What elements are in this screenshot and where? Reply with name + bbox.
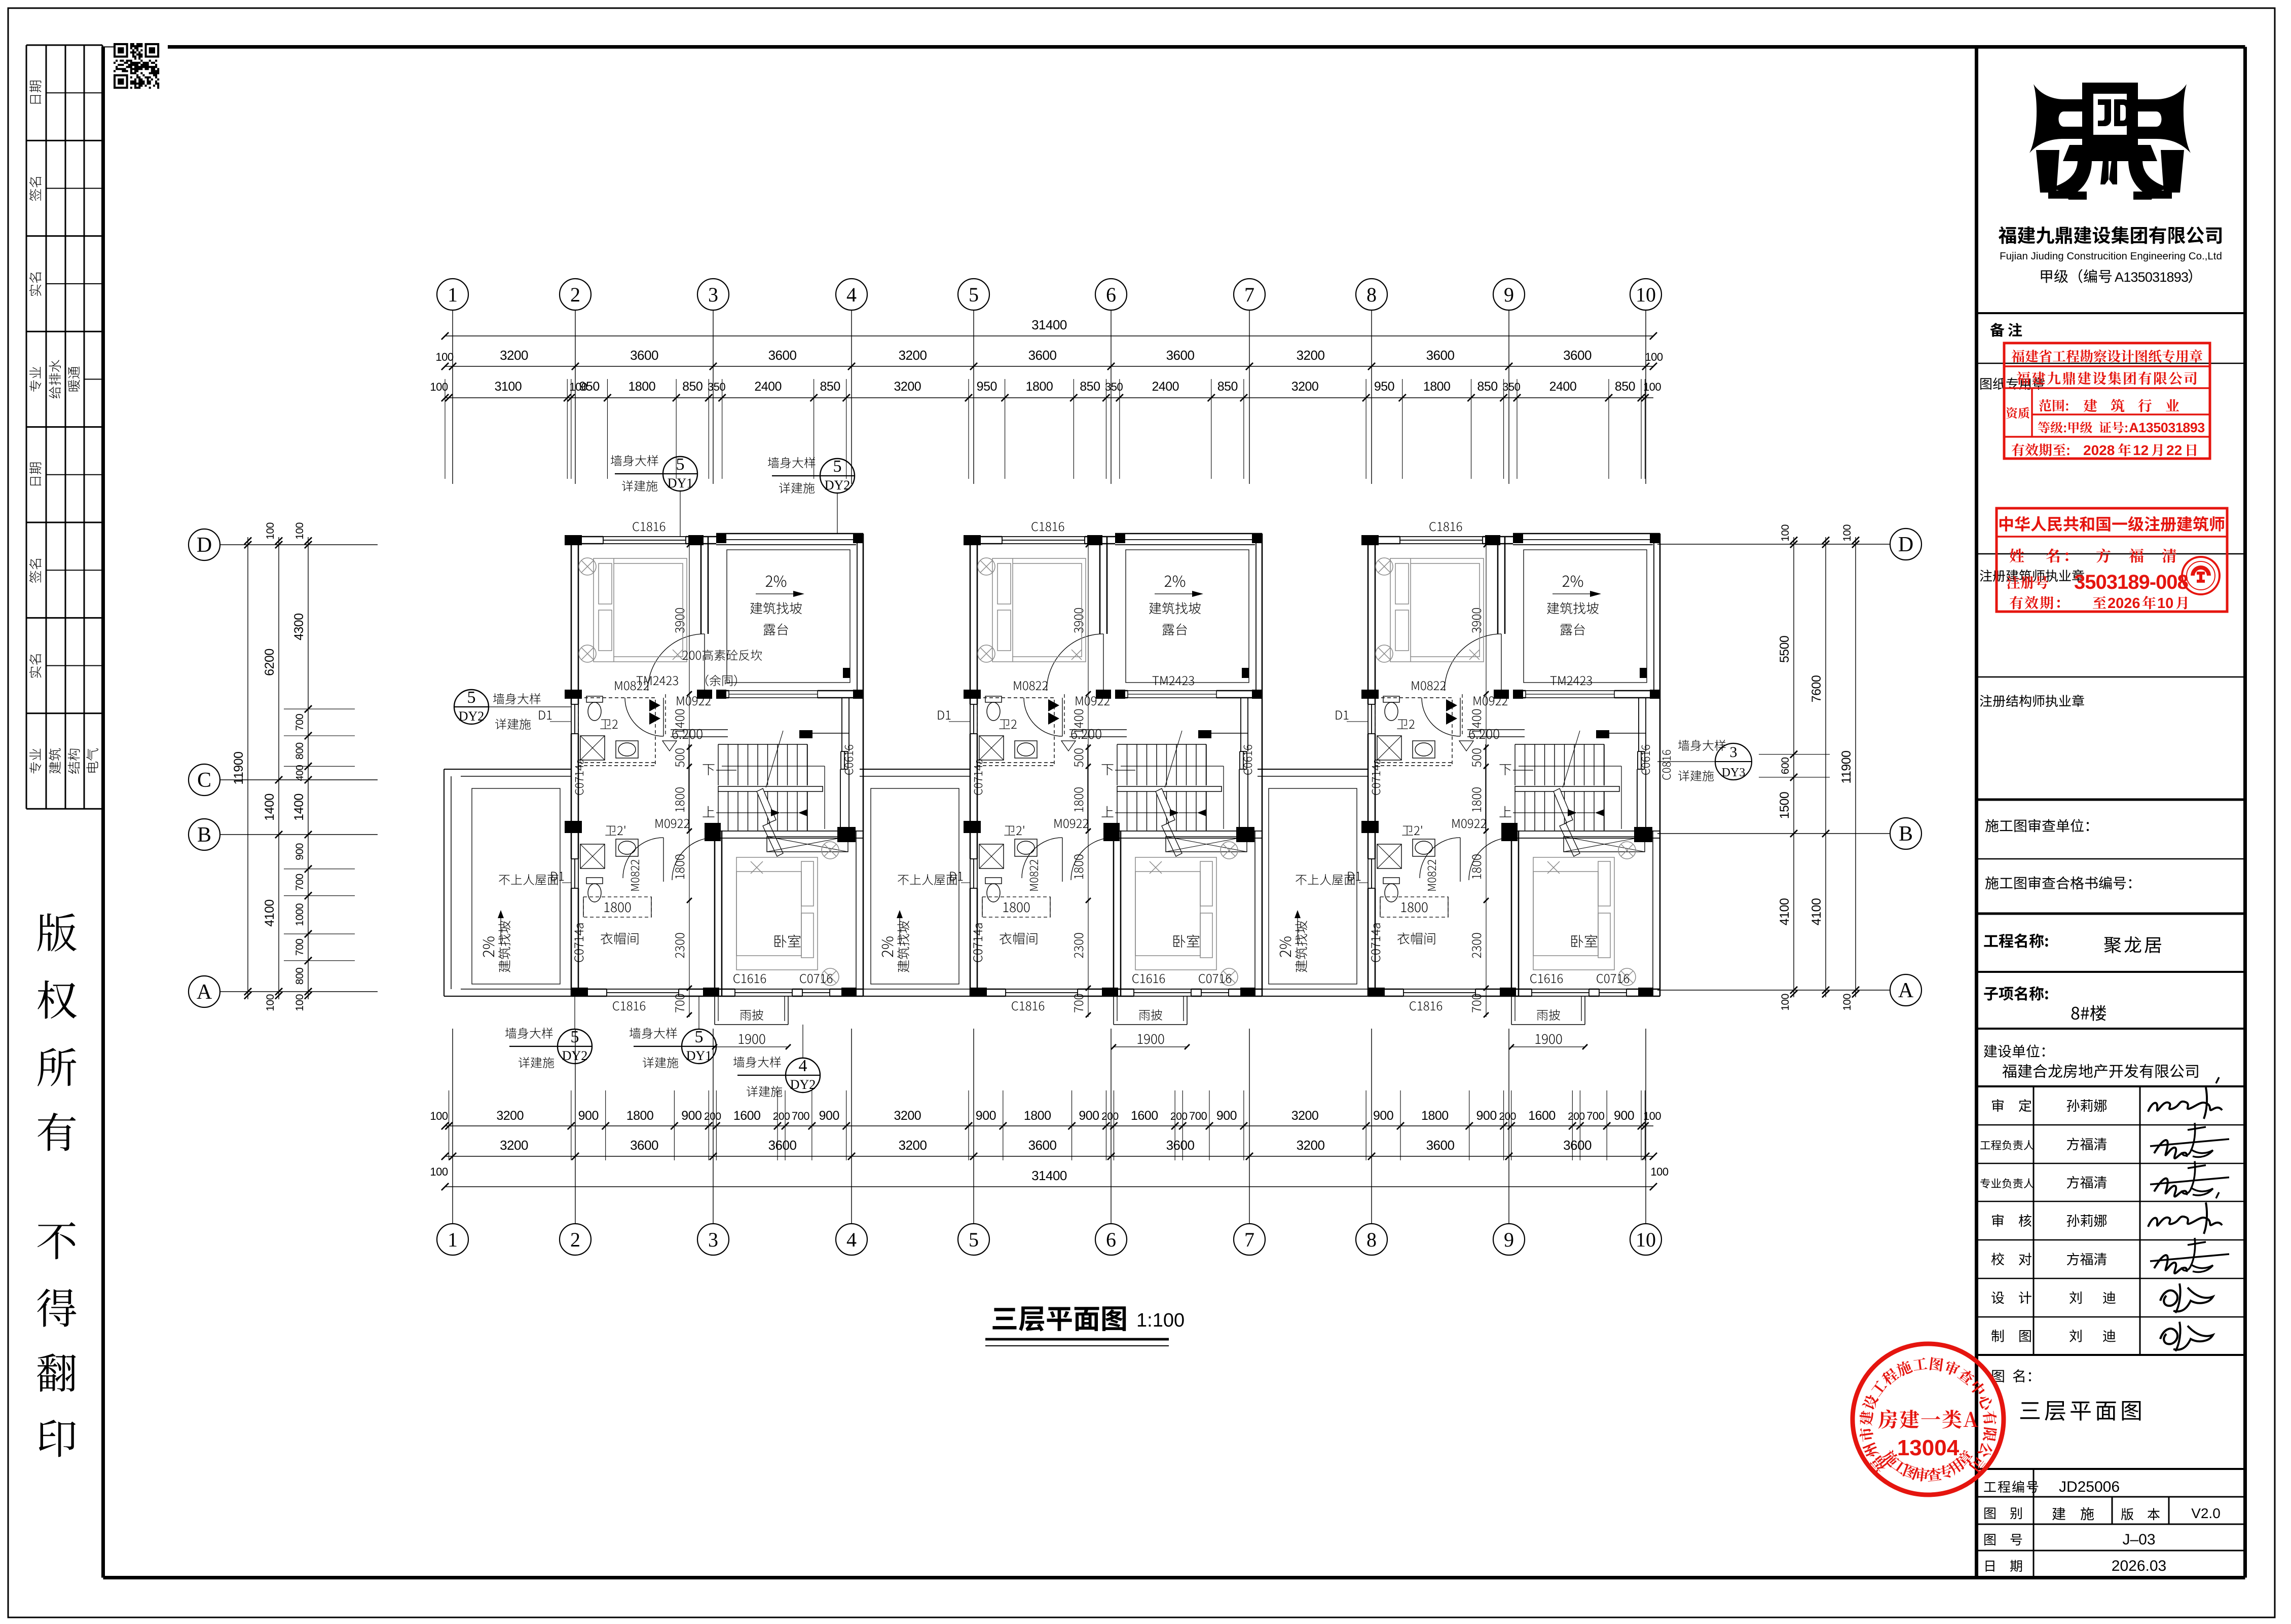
- svg-text:900: 900: [819, 1109, 839, 1123]
- svg-text:600: 600: [1780, 758, 1791, 775]
- svg-text:3600: 3600: [1563, 1138, 1592, 1153]
- svg-text:850: 850: [1615, 380, 1635, 394]
- svg-text:950: 950: [977, 380, 997, 394]
- svg-text:1400: 1400: [292, 794, 306, 821]
- svg-text:8: 8: [1366, 1228, 1377, 1251]
- svg-text:100: 100: [1780, 524, 1791, 542]
- svg-text:DY1: DY1: [686, 1048, 712, 1063]
- svg-text:100: 100: [265, 994, 276, 1011]
- svg-text:700: 700: [792, 1110, 809, 1122]
- svg-text:1800: 1800: [626, 1109, 654, 1123]
- svg-text:1800: 1800: [1026, 380, 1053, 394]
- svg-text:5: 5: [676, 455, 685, 474]
- svg-text:100: 100: [1841, 524, 1853, 542]
- svg-text:400: 400: [294, 765, 306, 781]
- svg-text:100: 100: [1780, 994, 1791, 1011]
- svg-text:950: 950: [579, 380, 600, 394]
- svg-text:DY2: DY2: [459, 709, 485, 724]
- svg-text:900: 900: [1373, 1109, 1393, 1123]
- svg-text:2026: 2026: [2108, 595, 2140, 612]
- svg-text:13004: 13004: [1897, 1436, 1960, 1460]
- svg-text:5500: 5500: [1778, 636, 1792, 663]
- svg-text:1: 1: [448, 1228, 458, 1251]
- svg-text:850: 850: [820, 380, 840, 394]
- svg-text:JD25006: JD25006: [2059, 1479, 2120, 1495]
- svg-text:200: 200: [1568, 1111, 1585, 1122]
- svg-text:1800: 1800: [1423, 380, 1451, 394]
- svg-text:10: 10: [1636, 283, 1656, 306]
- svg-text:200: 200: [1170, 1111, 1188, 1122]
- svg-text:100: 100: [430, 1110, 448, 1122]
- svg-text:350: 350: [1105, 381, 1123, 393]
- svg-text:6200: 6200: [263, 649, 277, 676]
- svg-text:4300: 4300: [292, 613, 306, 640]
- svg-text:100: 100: [1841, 994, 1853, 1011]
- svg-text:1500: 1500: [1778, 792, 1792, 819]
- svg-text:2: 2: [570, 1228, 580, 1251]
- svg-text:A135031893: A135031893: [2129, 420, 2205, 435]
- svg-text:700: 700: [1586, 1110, 1604, 1122]
- svg-text:950: 950: [1374, 380, 1394, 394]
- svg-text:2400: 2400: [754, 380, 782, 394]
- svg-text:3600: 3600: [1426, 348, 1455, 363]
- svg-text:5: 5: [969, 1228, 979, 1251]
- svg-text:3600: 3600: [768, 348, 797, 363]
- svg-text:3200: 3200: [1297, 1138, 1325, 1153]
- svg-text:A: A: [1898, 979, 1914, 1002]
- svg-text:3: 3: [708, 1228, 718, 1251]
- svg-text:100: 100: [435, 351, 453, 363]
- svg-text:A135031893: A135031893: [2115, 270, 2188, 285]
- svg-text:5: 5: [467, 688, 476, 707]
- svg-text:4: 4: [846, 283, 857, 306]
- svg-text:7600: 7600: [1809, 675, 1824, 703]
- svg-text:1600: 1600: [1528, 1109, 1556, 1123]
- svg-text:3600: 3600: [630, 348, 658, 363]
- svg-text:5: 5: [833, 457, 842, 476]
- svg-text:D: D: [1898, 533, 1913, 556]
- svg-text:10: 10: [1636, 1228, 1656, 1251]
- svg-text:3200: 3200: [1297, 348, 1325, 363]
- svg-text:22: 22: [2166, 442, 2182, 458]
- svg-text:3503189-008: 3503189-008: [2074, 571, 2189, 593]
- svg-text:C: C: [197, 769, 211, 792]
- svg-text:900: 900: [976, 1109, 996, 1123]
- svg-text:3600: 3600: [1563, 348, 1592, 363]
- svg-text:900: 900: [1216, 1109, 1237, 1123]
- svg-text:11900: 11900: [232, 751, 246, 784]
- svg-text:3200: 3200: [500, 1138, 528, 1153]
- svg-text:100: 100: [1650, 1165, 1668, 1178]
- svg-text:3600: 3600: [1166, 1138, 1195, 1153]
- svg-text:3600: 3600: [630, 1138, 658, 1153]
- svg-text:6: 6: [1106, 283, 1116, 306]
- svg-text:3200: 3200: [894, 1109, 921, 1123]
- svg-text:2026.03: 2026.03: [2112, 1558, 2166, 1574]
- svg-text:100: 100: [1643, 381, 1661, 393]
- svg-text:2400: 2400: [1152, 380, 1179, 394]
- svg-text:1800: 1800: [1421, 1109, 1449, 1123]
- svg-text:B: B: [197, 823, 211, 847]
- svg-text:5: 5: [695, 1028, 704, 1046]
- svg-text:8: 8: [1366, 283, 1377, 306]
- svg-text:A: A: [197, 980, 212, 1004]
- svg-text:350: 350: [708, 381, 725, 393]
- svg-text:7: 7: [1244, 283, 1254, 306]
- svg-text:DY3: DY3: [1722, 766, 1746, 779]
- svg-text:3200: 3200: [500, 348, 528, 363]
- svg-text:3600: 3600: [768, 1138, 797, 1153]
- svg-text:700: 700: [1189, 1110, 1207, 1122]
- svg-text:3200: 3200: [496, 1109, 524, 1123]
- svg-text:5: 5: [969, 283, 979, 306]
- svg-text:4: 4: [799, 1056, 807, 1075]
- svg-text:2028: 2028: [2083, 442, 2115, 458]
- svg-text:3200: 3200: [894, 380, 921, 394]
- svg-text:7: 7: [1244, 1228, 1254, 1251]
- svg-text:900: 900: [1079, 1109, 1099, 1123]
- svg-text:200: 200: [1101, 1111, 1119, 1122]
- svg-text:200: 200: [704, 1111, 721, 1122]
- svg-text:6: 6: [1106, 1228, 1116, 1251]
- svg-text:J–03: J–03: [2122, 1531, 2155, 1548]
- svg-text:850: 850: [1217, 380, 1238, 394]
- svg-text:3200: 3200: [1291, 1109, 1319, 1123]
- svg-text:800: 800: [294, 968, 306, 985]
- svg-text:DY2: DY2: [562, 1048, 588, 1063]
- svg-text:1:100: 1:100: [1136, 1310, 1185, 1331]
- svg-text:100: 100: [430, 1165, 448, 1178]
- svg-text:10: 10: [2157, 595, 2173, 612]
- svg-text:3600: 3600: [1028, 1138, 1057, 1153]
- svg-text:850: 850: [1080, 380, 1100, 394]
- svg-text:900: 900: [294, 843, 306, 860]
- svg-text:31400: 31400: [1031, 1168, 1067, 1183]
- svg-text:Fujian Jiuding Construcition E: Fujian Jiuding Construcition Engineering…: [2000, 250, 2222, 262]
- svg-text:1600: 1600: [1131, 1109, 1158, 1123]
- svg-text:1400: 1400: [263, 794, 277, 821]
- svg-text:31400: 31400: [1031, 317, 1067, 332]
- svg-text:900: 900: [1614, 1109, 1634, 1123]
- svg-text:D: D: [197, 534, 212, 557]
- svg-text:4: 4: [846, 1228, 857, 1251]
- svg-text:100: 100: [265, 522, 276, 540]
- svg-text:900: 900: [681, 1109, 701, 1123]
- svg-text:900: 900: [578, 1109, 599, 1123]
- svg-text:3100: 3100: [495, 380, 522, 394]
- svg-text:4100: 4100: [263, 899, 277, 927]
- svg-text:1600: 1600: [733, 1109, 761, 1123]
- svg-text:2: 2: [570, 283, 580, 306]
- svg-text:V2.0: V2.0: [2191, 1505, 2221, 1521]
- svg-text:1: 1: [448, 283, 458, 306]
- svg-text:850: 850: [1477, 380, 1497, 394]
- svg-text:9: 9: [1504, 1228, 1514, 1251]
- svg-text:100: 100: [1645, 351, 1662, 363]
- svg-text:12: 12: [2133, 442, 2149, 458]
- svg-text:350: 350: [1502, 381, 1520, 393]
- svg-text:1800: 1800: [628, 380, 655, 394]
- svg-text:700: 700: [294, 714, 306, 731]
- svg-text:850: 850: [682, 380, 703, 394]
- svg-text:100: 100: [294, 994, 306, 1011]
- svg-text:5: 5: [571, 1028, 579, 1046]
- svg-text:200: 200: [1499, 1111, 1516, 1122]
- svg-text:DY2: DY2: [790, 1077, 816, 1092]
- svg-text:3600: 3600: [1166, 348, 1195, 363]
- svg-text:1000: 1000: [294, 903, 306, 926]
- svg-text:DY2: DY2: [825, 478, 851, 493]
- svg-text:11900: 11900: [1839, 750, 1854, 783]
- svg-text:100: 100: [294, 522, 306, 540]
- svg-text:4100: 4100: [1809, 898, 1824, 926]
- svg-text:3: 3: [708, 283, 718, 306]
- svg-text:3600: 3600: [1426, 1138, 1455, 1153]
- svg-text:4100: 4100: [1778, 898, 1792, 926]
- svg-text:3: 3: [1730, 744, 1738, 761]
- svg-text:3200: 3200: [1291, 380, 1319, 394]
- svg-text:DY1: DY1: [668, 476, 693, 490]
- svg-text:700: 700: [294, 874, 306, 891]
- svg-text:2400: 2400: [1549, 380, 1577, 394]
- svg-text:9: 9: [1504, 283, 1514, 306]
- svg-text:800: 800: [294, 742, 306, 760]
- svg-text:700: 700: [294, 939, 306, 956]
- svg-text:3600: 3600: [1028, 348, 1057, 363]
- svg-text:900: 900: [1476, 1109, 1497, 1123]
- svg-text:1800: 1800: [1024, 1109, 1051, 1123]
- svg-text:3200: 3200: [899, 348, 927, 363]
- svg-text:3200: 3200: [899, 1138, 927, 1153]
- svg-text:B: B: [1899, 822, 1913, 846]
- svg-text:200: 200: [773, 1111, 790, 1122]
